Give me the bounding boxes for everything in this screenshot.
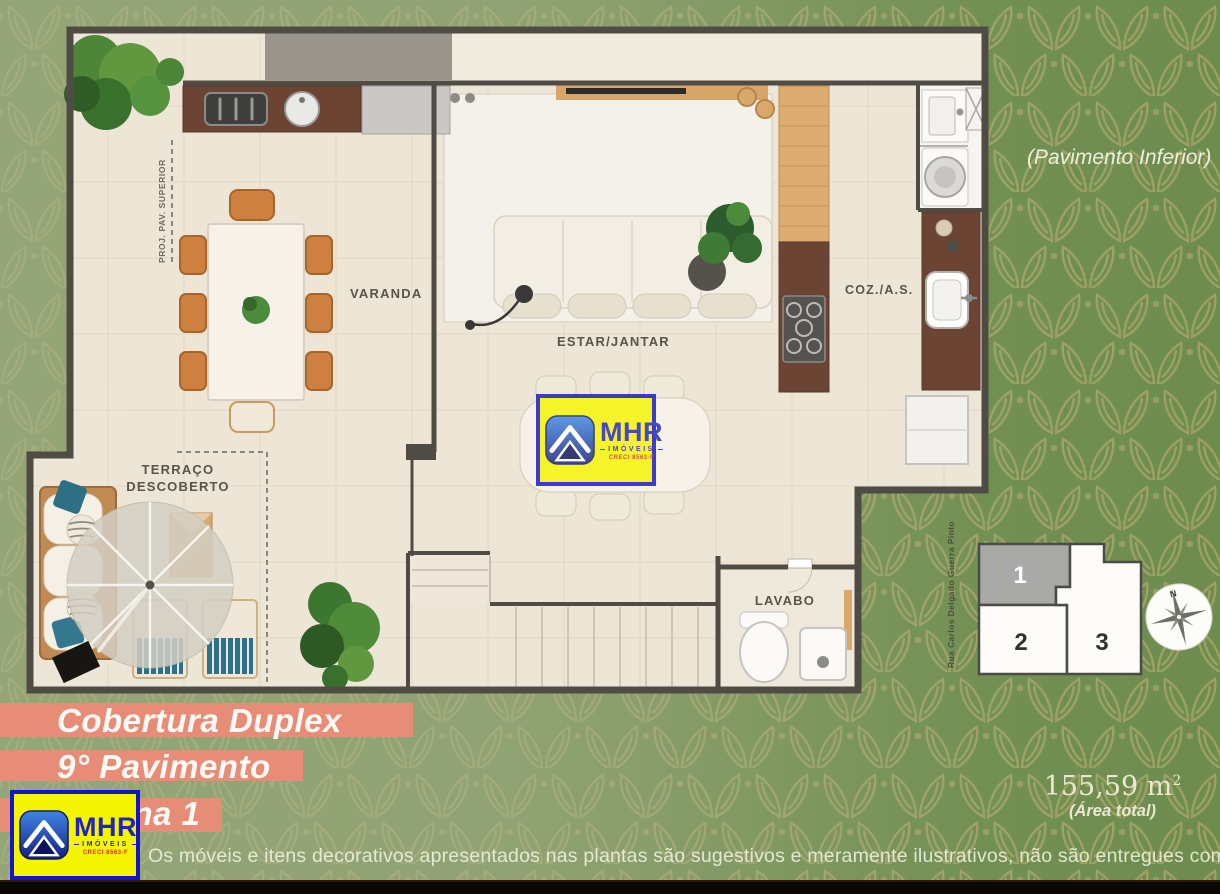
stove [783,296,825,362]
area-total-label: (Área total) [1030,802,1195,821]
bar-stool [756,100,774,118]
title-line-1: Cobertura Duplex [57,702,342,740]
label-street-name: Rua Carlos Delgado Guerra Pinto [946,521,956,668]
keyplan-unit2-number: 2 [1014,629,1027,656]
label-proj-pav-superior: PROJ. PAV. SUPERIOR [157,159,167,263]
lavabo-sink [800,628,846,680]
gray-slab [265,32,452,80]
bottom-black-bar [0,880,1220,894]
label-terraco-line2: DESCOBERTO [108,479,248,494]
compass: N [1139,577,1219,657]
bar-stool [738,88,756,106]
label-terraco-line1: TERRAÇO [108,462,248,477]
tv [566,88,686,94]
pavimento-note: (Pavimento Inferior) [1027,146,1211,170]
area-superscript: 2 [1172,773,1181,789]
label-estar-jantar: ESTAR/JANTAR [557,334,670,349]
column [406,444,436,460]
poster: 1 2 3 N VARANDA ESTAR/JANTAR COZ./A.S. T… [0,0,1220,894]
upper-slab-strip [452,32,985,84]
area-block: 155,59 m2 (Área total) [1030,766,1195,821]
cabinet [362,86,450,134]
mhr-text-block: MHR IMÓVEIS CRECI 8563-F [74,814,137,856]
mhr-creci: CRECI 8563-F [74,850,137,856]
mhr-name: MHR [74,814,137,840]
mhr-watermark-logo: MHR IMÓVEIS CRECI 8563-F [536,394,656,486]
washing-machine [922,148,968,206]
label-varanda: VARANDA [350,286,422,301]
keyplan-unit3-number: 3 [1095,629,1108,656]
toilet [740,622,788,682]
mhr-house-icon [545,415,595,465]
mhr-name: MHR [600,419,663,445]
island-wood [779,86,829,242]
label-lavabo: LAVABO [742,593,828,608]
door [788,559,812,568]
mhr-house-icon [19,810,69,860]
mhr-subtitle: IMÓVEIS [600,446,663,453]
mhr-subtitle: IMÓVEIS [74,841,137,848]
key-plan: 1 2 3 [979,544,1141,674]
disclaimer-text: Os móveis e itens decorativos apresentad… [148,845,1220,868]
mhr-creci: CRECI 8563-F [600,455,663,461]
keyplan-unit1-number: 1 [1013,562,1026,589]
area-value: 155,59 m2 [1030,766,1195,802]
mhr-text-block: MHR IMÓVEIS CRECI 8563-F [600,419,663,461]
lavabo [722,559,854,686]
title-line-2: 9° Pavimento [57,748,271,786]
mhr-logo: MHR IMÓVEIS CRECI 8563-F [10,790,140,880]
label-coz-as: COZ./A.S. [845,283,913,297]
